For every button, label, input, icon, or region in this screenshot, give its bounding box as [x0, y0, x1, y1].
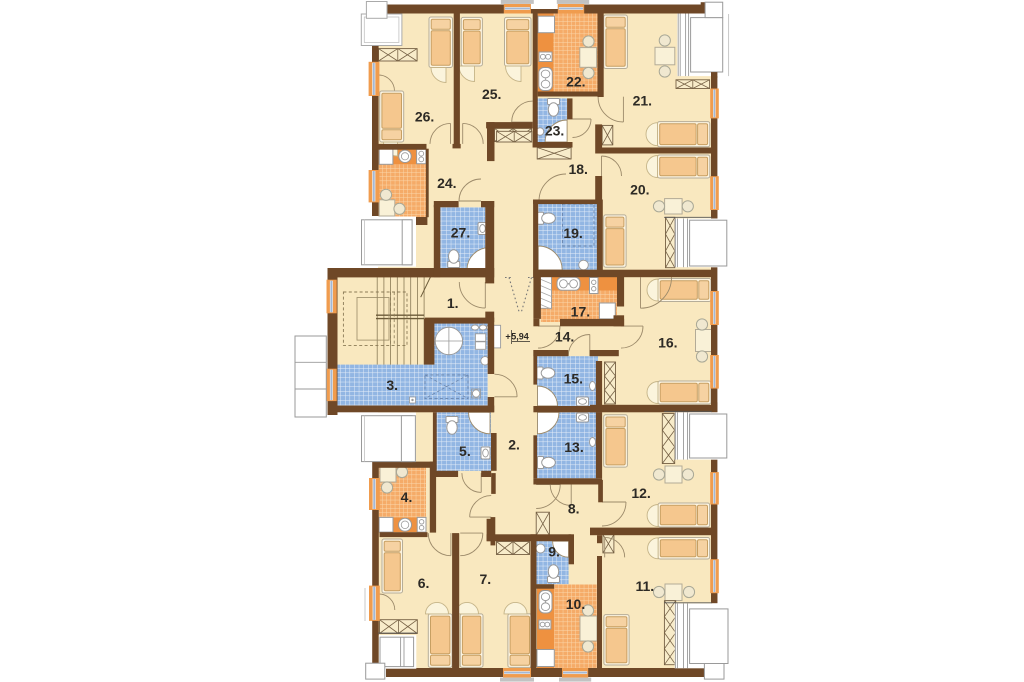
- svg-text:21.: 21.: [633, 93, 652, 109]
- svg-text:10.: 10.: [566, 596, 585, 612]
- svg-text:27.: 27.: [451, 225, 470, 241]
- svg-text:9.: 9.: [548, 544, 560, 560]
- svg-text:5.: 5.: [459, 443, 471, 459]
- svg-text:8.: 8.: [568, 501, 580, 517]
- svg-text:25.: 25.: [482, 86, 501, 102]
- svg-text:20.: 20.: [630, 182, 649, 198]
- svg-text:6.: 6.: [418, 575, 430, 591]
- svg-text:2.: 2.: [508, 437, 520, 453]
- svg-text:26.: 26.: [415, 109, 434, 125]
- svg-text:23.: 23.: [545, 123, 564, 139]
- svg-text:22.: 22.: [566, 74, 585, 90]
- svg-text:16.: 16.: [658, 335, 677, 351]
- svg-text:+: +: [505, 332, 510, 342]
- svg-text:1.: 1.: [447, 295, 459, 311]
- svg-text:4.: 4.: [401, 489, 413, 505]
- svg-text:18.: 18.: [568, 161, 587, 177]
- svg-text:13.: 13.: [564, 439, 583, 455]
- svg-text:3.: 3.: [386, 377, 398, 393]
- svg-text:14.: 14.: [555, 329, 574, 345]
- svg-text:24.: 24.: [437, 175, 456, 191]
- svg-text:12.: 12.: [631, 485, 650, 501]
- svg-text:5,94: 5,94: [511, 332, 529, 342]
- svg-text:19.: 19.: [563, 225, 582, 241]
- svg-text:11.: 11.: [635, 578, 654, 594]
- svg-text:15.: 15.: [564, 371, 583, 387]
- svg-text:17.: 17.: [571, 304, 590, 320]
- svg-text:7.: 7.: [479, 571, 491, 587]
